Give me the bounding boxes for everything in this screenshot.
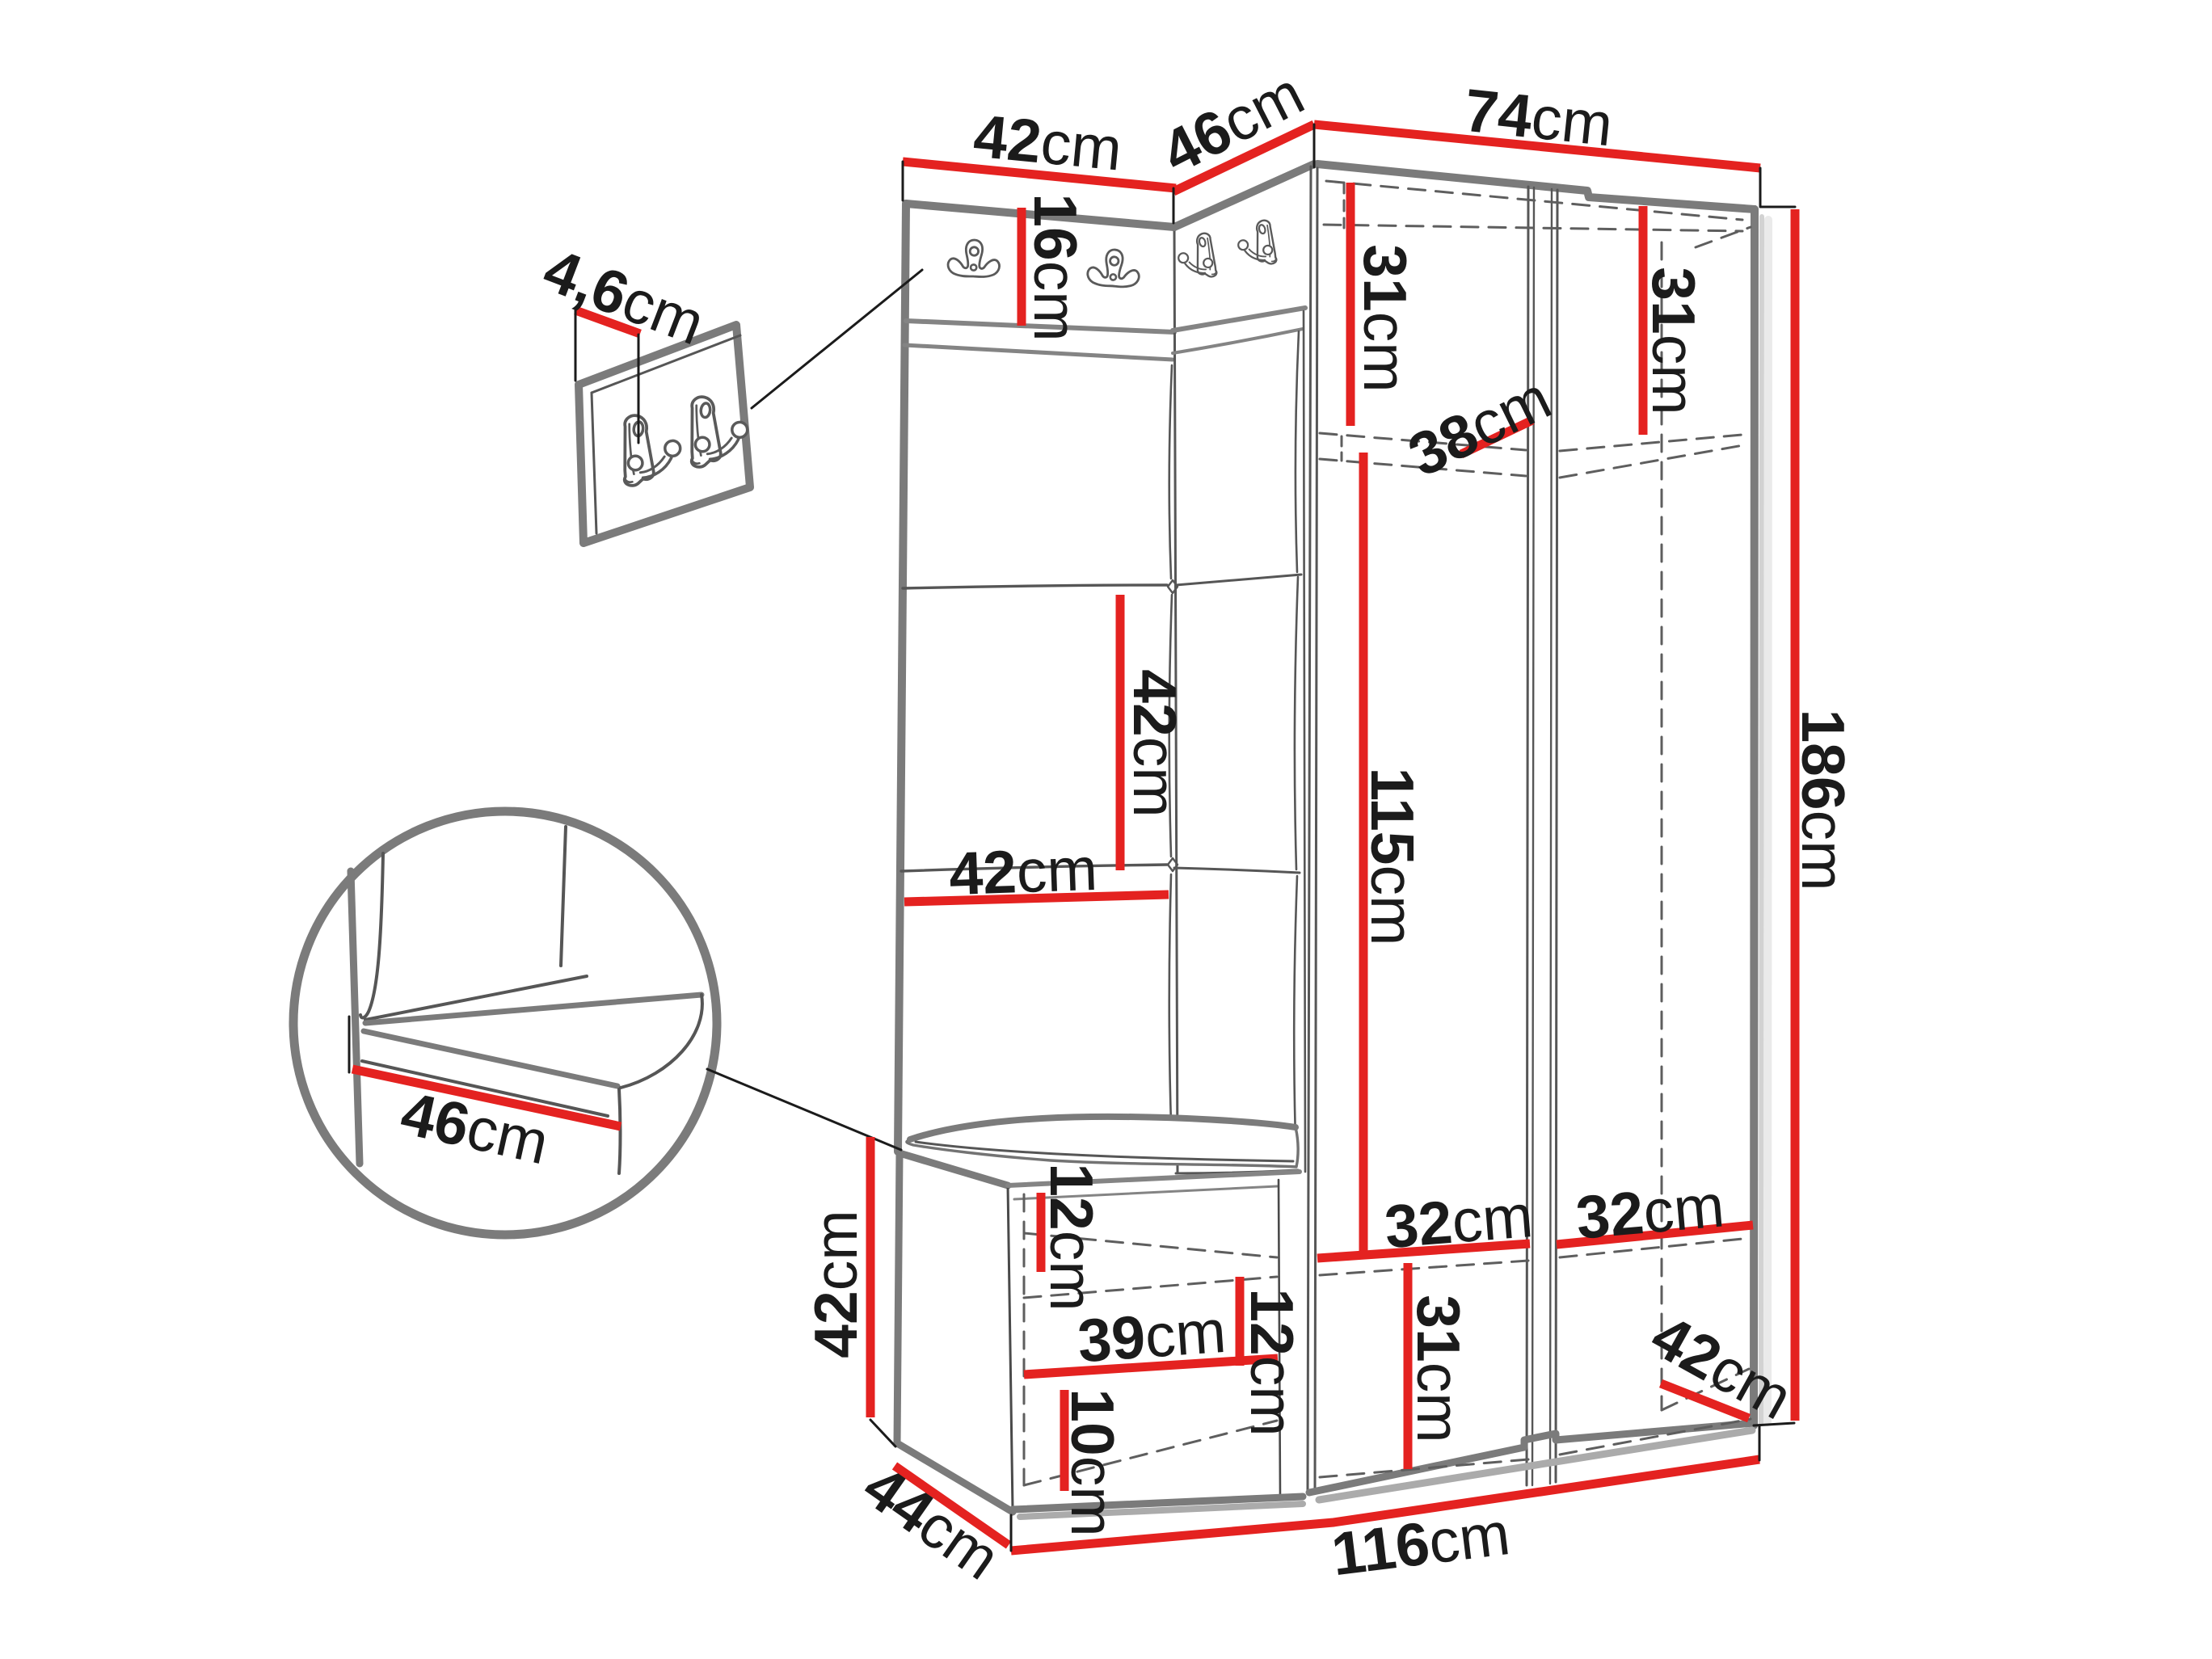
svg-text:12cm: 12cm	[1038, 1163, 1106, 1311]
svg-text:31cm: 31cm	[1351, 244, 1419, 392]
svg-text:32cm: 32cm	[1574, 1171, 1727, 1252]
svg-text:42cm: 42cm	[802, 1210, 870, 1358]
svg-text:42cm: 42cm	[948, 835, 1098, 907]
svg-text:12cm: 12cm	[1238, 1288, 1306, 1436]
svg-text:42cm: 42cm	[1121, 669, 1189, 817]
svg-text:31cm: 31cm	[1640, 267, 1708, 415]
svg-text:42cm: 42cm	[971, 102, 1125, 183]
svg-text:186cm: 186cm	[1789, 709, 1857, 891]
svg-text:39cm: 39cm	[1076, 1297, 1228, 1375]
svg-text:115cm: 115cm	[1359, 768, 1426, 946]
svg-text:31cm: 31cm	[1405, 1295, 1473, 1442]
svg-text:10cm: 10cm	[1059, 1388, 1127, 1536]
svg-text:16cm: 16cm	[1022, 193, 1089, 341]
svg-text:32cm: 32cm	[1382, 1181, 1535, 1261]
